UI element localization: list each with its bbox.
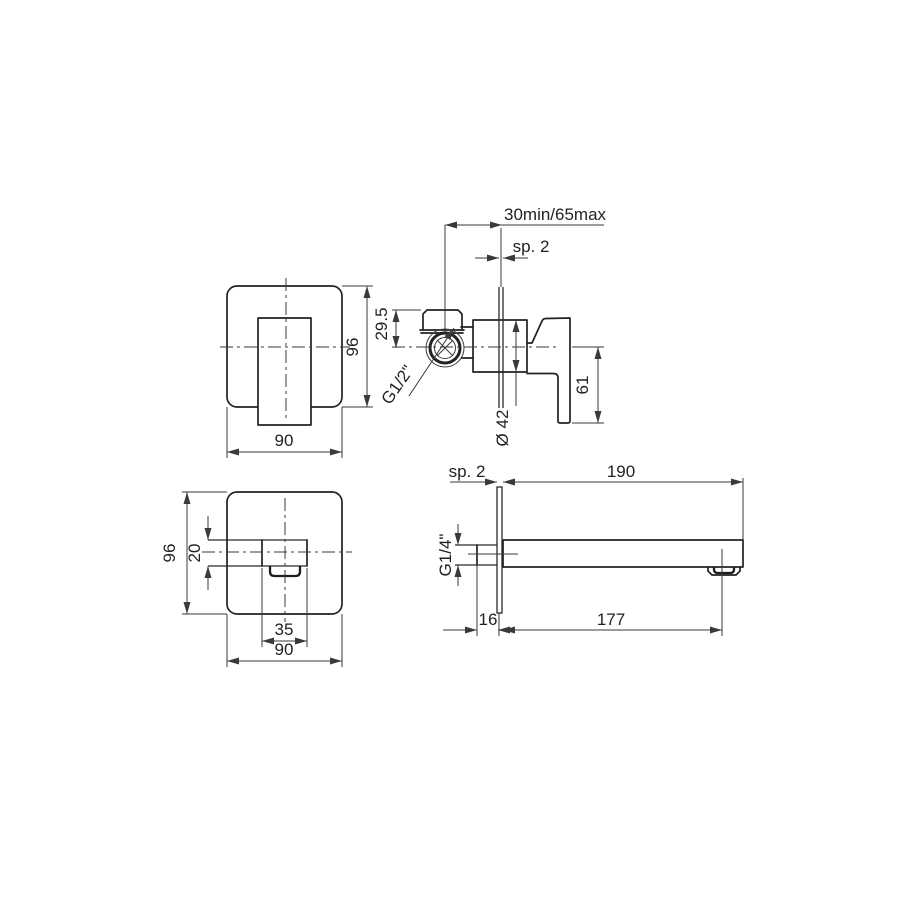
mixer-front-view: 96 90	[220, 278, 373, 458]
dim-handle-height: 61	[573, 376, 592, 395]
handle-front	[258, 318, 311, 425]
dim-spout-width: 35	[275, 620, 294, 639]
dim-plate-width: 90	[275, 431, 294, 450]
dim-plate-thickness-spout: sp. 2	[449, 462, 486, 481]
dim-wall-clearance: 16	[479, 610, 498, 629]
dim-plate-height: 96	[160, 544, 179, 563]
spout-body	[503, 540, 743, 567]
dim-spout-height: 20	[185, 544, 204, 563]
dim-inlet-thread: G1/2"	[377, 362, 417, 408]
spout-side-view: sp. 2 190 G1/4" 16 177	[436, 462, 743, 636]
dim-plate-width: 90	[275, 640, 294, 659]
dim-top-inlet-offset: 29.5	[372, 307, 391, 340]
handle-side	[527, 318, 570, 423]
dim-body-diameter: Ø 42	[493, 410, 512, 447]
dim-spout-length: 190	[607, 462, 635, 481]
mixer-body	[473, 320, 527, 372]
spout-front-view: 20 96 35 90	[160, 492, 352, 667]
dim-plate-height: 96	[343, 338, 362, 357]
dim-plate-thickness-side: sp. 2	[513, 237, 550, 256]
technical-drawing-page: 96 90 30min/65max sp. 2	[0, 0, 900, 900]
top-inlet-fitting	[423, 310, 462, 330]
spout-plate-edge	[497, 487, 502, 613]
mixer-side-view: 30min/65max sp. 2 29.5 G1/2"	[372, 205, 607, 446]
dim-depth-range: 30min/65max	[504, 205, 607, 224]
technical-drawing: 96 90 30min/65max sp. 2	[0, 0, 900, 900]
dim-spout-thread: G1/4"	[436, 534, 455, 577]
dim-aerator-distance: 177	[597, 610, 625, 629]
